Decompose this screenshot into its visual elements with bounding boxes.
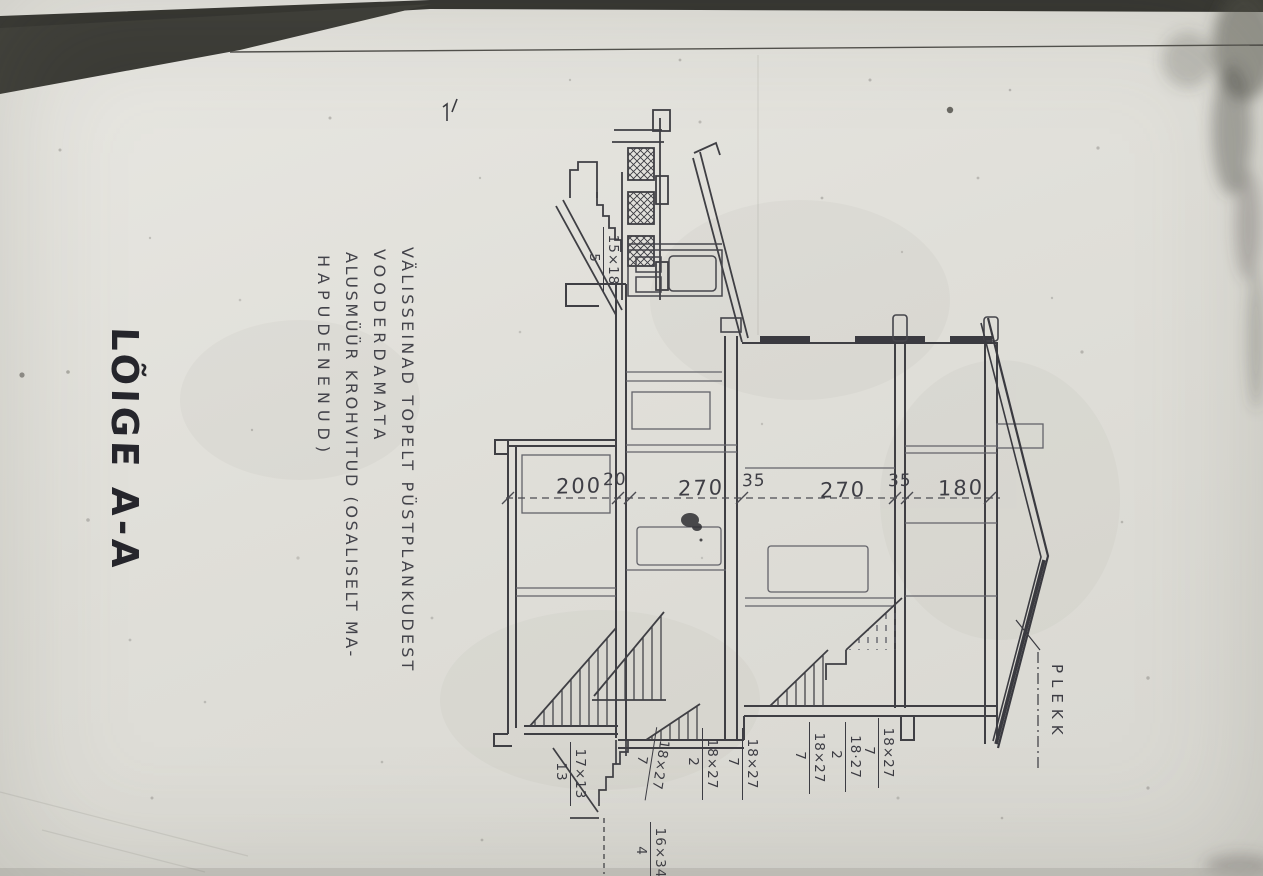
dim-label-180: 180 [938, 475, 985, 500]
edge-smudges [1162, 0, 1263, 876]
note-line-3: ALUSMÜÜR KROHVITUD (OSALISELT MA- [342, 252, 361, 659]
dim-label-35-b: 35 [888, 471, 912, 492]
dim-label-200: 200 [556, 473, 603, 498]
dim-label-20: 20 [603, 470, 627, 491]
fraction-chimney: 15×18 5 [586, 227, 621, 289]
fraction-bottom: 16×34 4 [633, 822, 668, 876]
note-line-4: HAPUDENENUD) [314, 255, 333, 458]
wall-plates [760, 336, 992, 344]
fraction-beam-3: 18×27 7 [725, 728, 760, 796]
fraction-beam-2: 18×27 2 [685, 728, 720, 796]
fraction-eave: 17×13 13 [553, 742, 588, 802]
drawing-frame-line [230, 45, 1263, 52]
fraction-beam-4: 18×27 7 [792, 722, 827, 790]
dim-label-270-a: 270 [678, 475, 725, 500]
corner-pen-mark [443, 99, 457, 121]
note-line-1: VÄLISSEINAD TOPELT PÜSTPLANKUDEST [398, 247, 417, 674]
drawing-title: LÕIGE A-A [103, 326, 146, 572]
fraction-beam-6: 18×27 7 [861, 718, 896, 784]
note-line-2: VOODERDAMATA [370, 249, 389, 444]
roof-material-label: PLEKK [1048, 664, 1066, 741]
fraction-beam-5: 18·27 2 [828, 722, 863, 788]
paper-bottom-edge [0, 868, 1263, 876]
photo-of-architectural-drawing: LÕIGE A-A VÄLISSEINAD TOPELT PÜSTPLANKUD… [0, 0, 1263, 876]
dim-label-270-b: 270 [820, 477, 867, 502]
photo-border-band [0, 0, 1263, 94]
section-drawing-linework [0, 0, 1263, 876]
dim-label-35-a: 35 [742, 471, 766, 492]
